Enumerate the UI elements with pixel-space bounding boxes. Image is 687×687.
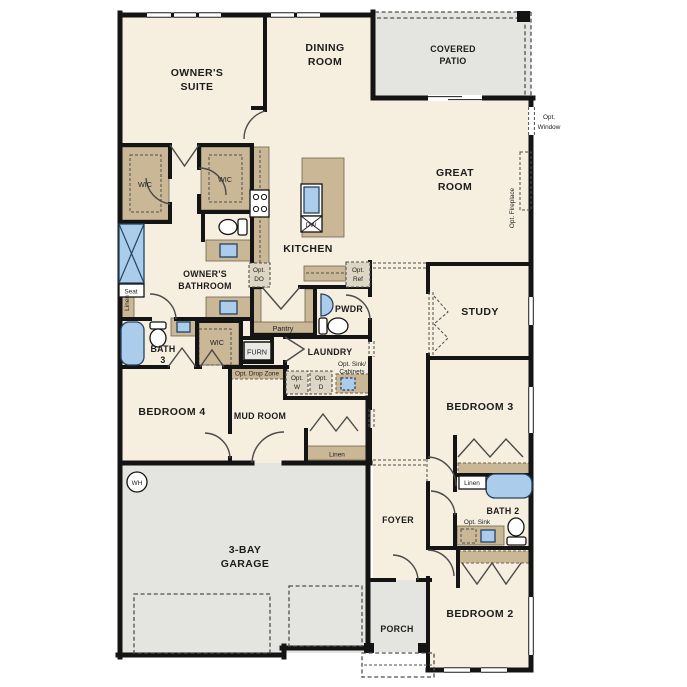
porch-steps — [362, 653, 434, 677]
svg-text:ROOM: ROOM — [308, 56, 342, 68]
label-linen-bath2: Linen — [464, 480, 480, 487]
porch-slab — [368, 580, 428, 652]
svg-text:Cabinets: Cabinets — [339, 369, 364, 376]
label-porch: PORCH — [380, 624, 413, 634]
svg-text:PATIO: PATIO — [439, 56, 466, 66]
label-pantry: Pantry — [273, 324, 294, 333]
label-foyer: FOYER — [382, 515, 414, 525]
owner-sink-2 — [220, 301, 237, 314]
bath2-sink — [481, 530, 495, 542]
label-dw: DW — [306, 222, 318, 229]
owner-toilet — [219, 219, 247, 235]
porch-post-left — [364, 643, 374, 653]
owner-shower — [119, 224, 144, 297]
label-wh: WH — [132, 480, 143, 487]
bath2-tub — [486, 474, 532, 498]
opt-window-gap — [528, 107, 535, 135]
label-opt-w: Opt. — [291, 375, 303, 382]
label-opt-do: Opt. — [253, 267, 265, 274]
label-furn: FURN — [247, 348, 267, 357]
label-study: STUDY — [461, 306, 499, 318]
svg-text:GARAGE: GARAGE — [221, 558, 270, 570]
label-seat: Seat — [124, 289, 137, 296]
study-window — [528, 297, 534, 325]
svg-text:BATHROOM: BATHROOM — [178, 281, 232, 291]
svg-text:ROOM: ROOM — [438, 181, 472, 193]
patio-slider — [428, 95, 482, 101]
label-mud-room: MUD ROOM — [234, 411, 286, 421]
label-bath3: BATH — [151, 344, 176, 354]
label-wic-right: WIC — [218, 175, 232, 184]
bedroom3-window — [528, 387, 534, 433]
svg-text:SUITE: SUITE — [181, 81, 214, 93]
opt-laundry-sink — [341, 378, 355, 390]
bath2-toilet — [507, 518, 526, 545]
svg-text:D: D — [319, 384, 324, 391]
label-bedroom3: BEDROOM 3 — [446, 401, 513, 413]
pwdr-toilet — [319, 318, 348, 334]
label-great-room: GREAT — [436, 167, 474, 179]
bedroom2-window-side — [528, 597, 534, 655]
bedroom2-closet-shelf — [458, 551, 530, 563]
label-laundry: LAUNDRY — [308, 347, 353, 357]
owner-sink-1 — [220, 244, 237, 257]
island-sink — [301, 184, 322, 216]
svg-text:DO: DO — [254, 276, 264, 283]
bath3-sink — [177, 322, 190, 332]
label-covered-patio: COVERED — [430, 44, 476, 54]
label-owners-suite: OWNER'S — [171, 67, 224, 79]
label-pwdr: PWDR — [335, 304, 363, 314]
label-opt-sink: Opt. Sink — [464, 519, 491, 526]
label-bath2: BATH 2 — [487, 506, 520, 516]
label-garage: 3-BAY — [229, 544, 262, 556]
svg-text:Window: Window — [538, 124, 561, 131]
label-kitchen: KITCHEN — [283, 243, 332, 255]
label-opt-drop-zone: Opt. Drop Zone — [235, 371, 279, 378]
label-wic-bath3: WIC — [210, 338, 224, 347]
opt-ref-box — [346, 262, 370, 287]
floorplan-drawing: OWNER'S SUITE DINING ROOM COVERED PATIO … — [0, 0, 687, 687]
label-opt-window: Opt. — [543, 114, 555, 121]
owners-suite-windows — [147, 12, 221, 18]
svg-text:W: W — [294, 384, 301, 391]
svg-text:Ref: Ref — [353, 276, 363, 283]
label-wic-left: WIC — [138, 180, 152, 189]
bath3-tub — [121, 322, 144, 365]
label-opt-ref: Opt. — [352, 267, 364, 274]
patio-corner-post — [517, 11, 530, 22]
label-opt-sink-cabinets: Opt. Sink/ — [338, 361, 366, 368]
label-dining: DINING — [305, 42, 344, 54]
floorplan-page: OWNER'S SUITE DINING ROOM COVERED PATIO … — [0, 0, 687, 687]
label-opt-fireplace: Opt. Fireplace — [509, 187, 516, 228]
label-owners-bathroom: OWNER'S — [183, 269, 227, 279]
svg-text:3: 3 — [160, 355, 165, 365]
label-linen-mudroom: Linen — [329, 452, 345, 459]
floor-areas — [120, 12, 531, 670]
label-linen-owner: Linen — [124, 295, 131, 311]
label-opt-d: Opt. — [315, 375, 327, 382]
label-bedroom4: BEDROOM 4 — [138, 406, 205, 418]
covered-patio-slab — [375, 12, 531, 98]
kitchen-lower-counter — [304, 266, 346, 281]
cooktop — [250, 190, 269, 217]
label-bedroom2: BEDROOM 2 — [446, 608, 513, 620]
